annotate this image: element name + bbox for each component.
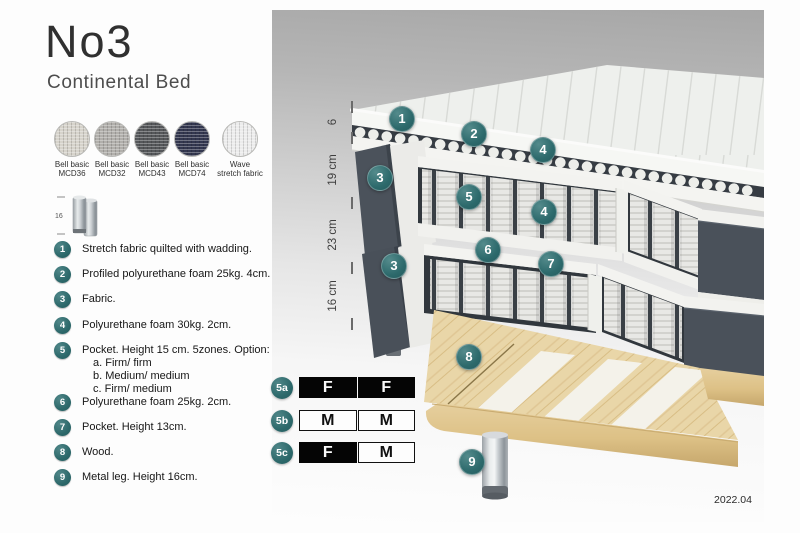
legend-item-text: Fabric. [82, 293, 116, 305]
swatch-name: Bell basic [135, 160, 169, 169]
dimension-label: 19 cm [327, 148, 341, 192]
legend-number-badge: 2 [54, 266, 71, 283]
firmness-cell: M [358, 410, 416, 431]
swatch-code: stretch fabric [217, 169, 263, 178]
metal-leg-glyph [73, 196, 97, 237]
callout-badge: 1 [389, 106, 415, 132]
dimension-tick [351, 101, 353, 113]
swatch-name: Bell basic [95, 160, 129, 169]
leg-height-value: 16 [55, 213, 63, 220]
fabric-swatch: Wavestretch fabric [217, 121, 263, 178]
legend-item-text: Polyurethane foam 25kg. 2cm. [82, 396, 231, 408]
dimension-tick [351, 132, 353, 144]
callout-badge: 9 [459, 449, 485, 475]
fabric-swatch-circle [94, 121, 130, 157]
legend-number-badge: 1 [54, 241, 71, 258]
legend-item-text: Profiled polyurethane foam 25kg. 4cm. [82, 268, 270, 280]
dimension-label: 6 [327, 100, 341, 144]
swatch-name: Bell basic [175, 160, 209, 169]
fabric-swatch-circle [174, 121, 210, 157]
legend-option: b. Medium/ medium [93, 370, 190, 382]
swatch-code: MCD32 [98, 169, 125, 178]
legend-item-text: Pocket. Height 13cm. [82, 421, 187, 433]
diagram-panel: 6 19 cm 23 cm 16 cm 1 2 4 3 5 4 6 7 3 8 … [272, 10, 764, 522]
callout-badge: 2 [461, 121, 487, 147]
legend-number-badge: 6 [54, 394, 71, 411]
firmness-cell: M [299, 410, 357, 431]
fabric-swatch: Bell basicMCD74 [169, 121, 215, 178]
firmness-cell: F [299, 442, 357, 463]
product-sheet: No3 Continental Bed Bell basicMCD36 Bell… [0, 0, 800, 533]
firmness-option-badge: 5c [271, 442, 293, 464]
legend-number-badge: 4 [54, 317, 71, 334]
firmness-option-badge: 5a [271, 377, 293, 399]
upper-fabric-front [698, 221, 764, 300]
callout-badge: 3 [367, 165, 393, 191]
info-column: No3 Continental Bed Bell basicMCD36 Bell… [0, 0, 272, 533]
dimension-tick [351, 197, 353, 209]
legend-item-text: Stretch fabric quilted with wadding. [82, 243, 252, 255]
product-subtitle: Continental Bed [47, 72, 191, 94]
dimension-label: 16 cm [327, 274, 341, 318]
legend-option: a. Firm/ firm [93, 357, 152, 369]
dimension-label: 23 cm [327, 213, 341, 257]
legend-number-badge: 5 [54, 342, 71, 359]
callout-badge: 7 [538, 251, 564, 277]
version-label: 2022.04 [714, 494, 752, 506]
callout-badge: 6 [475, 237, 501, 263]
legend-option: c. Firm/ medium [93, 383, 172, 395]
firmness-cell: F [358, 377, 416, 398]
product-title: No3 [45, 16, 134, 68]
swatch-code: MCD36 [58, 169, 85, 178]
firmness-option-badge: 5b [271, 410, 293, 432]
callout-badge: 5 [456, 184, 482, 210]
legend-item-text: Wood. [82, 446, 114, 458]
legend-number-badge: 9 [54, 469, 71, 486]
callout-badge: 8 [456, 344, 482, 370]
legend-number-badge: 7 [54, 419, 71, 436]
callout-badge: 4 [530, 137, 556, 163]
firmness-cell: M [358, 442, 416, 463]
legend-number-badge: 3 [54, 291, 71, 308]
leg-dimension-icon: 16 [53, 190, 117, 240]
metal-leg-front [482, 432, 508, 500]
firmness-cell: F [299, 377, 357, 398]
swatch-code: MCD74 [178, 169, 205, 178]
swatch-name: Bell basic [55, 160, 89, 169]
fabric-swatch-circle [134, 121, 170, 157]
legend-item-text: Pocket. Height 15 cm. 5zones. Option: [82, 344, 270, 356]
swatch-name: Wave [230, 160, 250, 169]
swatch-code: MCD43 [138, 169, 165, 178]
legend-item-text: Metal leg. Height 16cm. [82, 471, 198, 483]
legend-item-text: Polyurethane foam 30kg. 2cm. [82, 319, 231, 331]
dimension-tick [351, 262, 353, 274]
callout-badge: 4 [531, 199, 557, 225]
fabric-swatch-circle [222, 121, 258, 157]
legend-number-badge: 8 [54, 444, 71, 461]
callout-badge: 3 [381, 253, 407, 279]
dimension-tick [351, 318, 353, 330]
fabric-swatch-circle [54, 121, 90, 157]
